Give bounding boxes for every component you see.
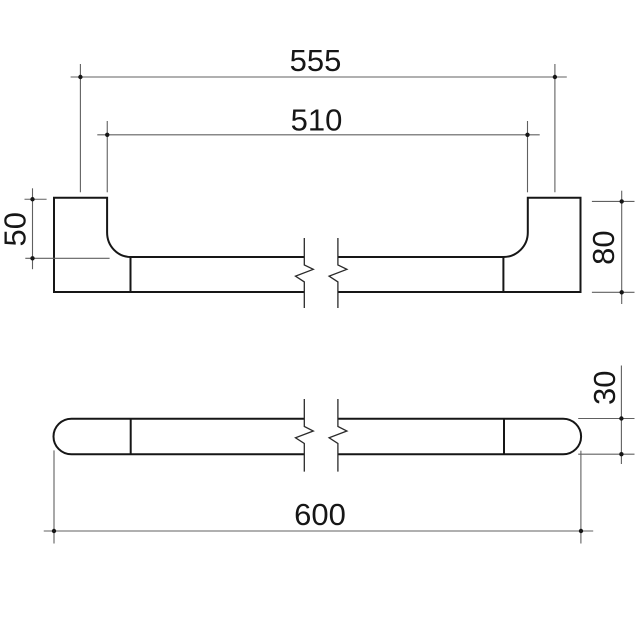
svg-text:50: 50 — [0, 212, 33, 246]
svg-text:510: 510 — [291, 102, 343, 137]
svg-text:600: 600 — [294, 497, 346, 532]
svg-text:80: 80 — [586, 230, 621, 264]
svg-text:555: 555 — [290, 43, 342, 78]
svg-text:30: 30 — [587, 371, 622, 405]
